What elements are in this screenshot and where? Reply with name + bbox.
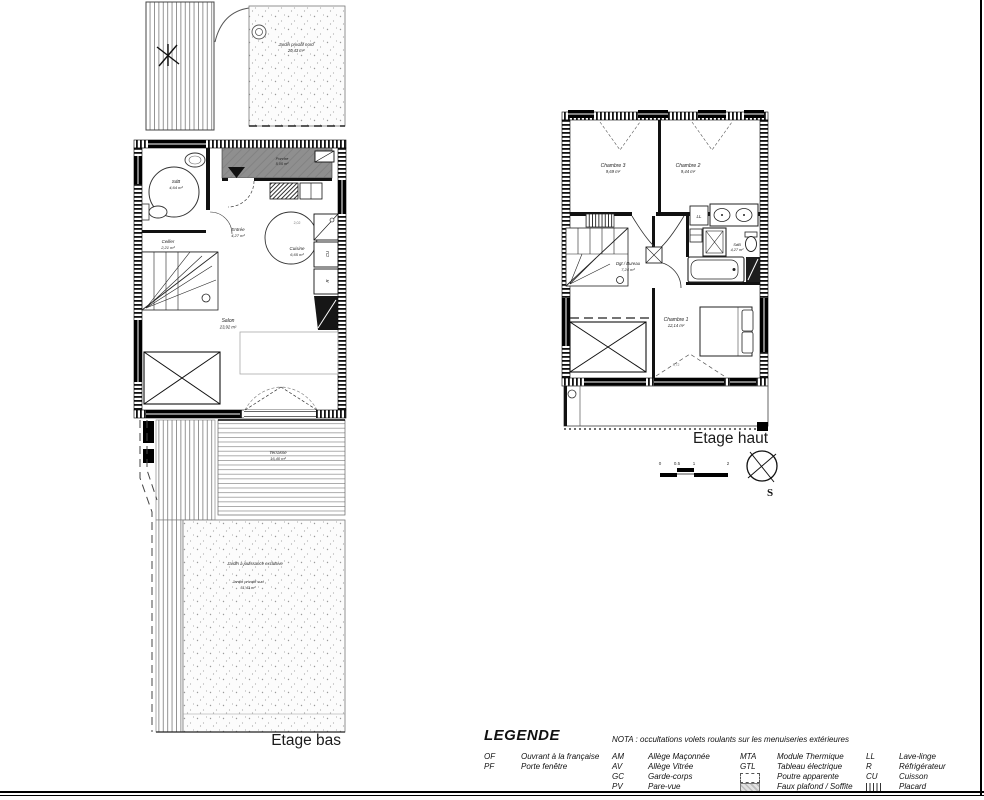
scale-tick-2: 2: [727, 461, 730, 466]
gtl-box: [690, 229, 702, 242]
chambre1-area: 12,14 m²: [668, 323, 685, 328]
compass-south-label: S: [767, 487, 773, 499]
jardin-nord-label: Jardin privatif nord: [277, 42, 314, 47]
sheet-border-bottom-inner: [0, 795, 984, 796]
scale-tick-0: 0: [659, 461, 662, 466]
washing-machine-label: LL: [696, 214, 702, 219]
cooktop-label: CU: [325, 250, 330, 257]
cuisine-label: Cuisine: [289, 246, 305, 251]
post: [143, 449, 154, 463]
jardin-nord-area: 20,43 m²: [287, 48, 305, 53]
sdb-haut-label: SdB: [733, 242, 741, 247]
sdb-bas-label: SdB: [172, 179, 181, 184]
legend-desc-gc: Garde-corps: [648, 772, 692, 781]
legend-abbr-ll: LL: [866, 752, 875, 761]
entree: Entrée 4,27 m²: [210, 212, 245, 238]
placard: [586, 214, 614, 227]
legend-abbr-pf: PF: [484, 762, 494, 771]
legend-abbr-of: OF: [484, 752, 495, 761]
legend-abbr-gc: GC: [612, 772, 624, 781]
bed: [700, 307, 753, 356]
basin-counter: [710, 204, 758, 226]
pillow: [742, 332, 753, 353]
wc-bowl: [149, 206, 167, 218]
jardin-exclusif-label: Jardin à jouissance exclusive: [226, 561, 283, 566]
legend-abbr-mta: MTA: [740, 752, 756, 761]
balcony: [564, 386, 768, 431]
entree-area: 4,27 m²: [231, 233, 245, 238]
legend-desc-av: Allège Vitrée: [648, 762, 693, 771]
entree-label: Entrée: [231, 227, 245, 232]
legend-abbr-r: R: [866, 762, 872, 771]
legend-desc-poutre: Poutre apparente: [777, 772, 839, 781]
chambre2-area: 9,44 m²: [681, 169, 696, 174]
legend-nota: NOTA : occultations volets roulants sur …: [612, 735, 849, 744]
double-height-void: [144, 352, 220, 404]
jardin-sud-label: Jardin privatif sud: [231, 579, 264, 584]
washbasin: [185, 153, 205, 167]
terrasse: Terrasse 16,40 m²: [218, 420, 345, 515]
legend-desc-faux-plafond: Faux plafond / Soffite: [777, 782, 853, 791]
sdb-haut-area: 4,27 m²: [731, 248, 745, 252]
fridge-label: R: [325, 279, 330, 282]
cellier: Cellier 2,21 m²: [142, 239, 218, 252]
legend-desc-mta: Module Thermique: [777, 752, 844, 761]
compass-rose: S: [747, 451, 777, 499]
legend-desc-pv: Pare-vue: [648, 782, 680, 791]
attic-hatch: [646, 247, 662, 263]
path-boundary: [140, 420, 152, 732]
legend-desc-cu: Cuisson: [899, 772, 928, 781]
etage-bas-title: Etage bas: [271, 732, 341, 749]
jardin-sud: Jardin à jouissance exclusive Jardin pri…: [156, 520, 345, 732]
scale-bar: 0 0.5 1 2: [659, 461, 730, 477]
scale-tick-1: 1: [693, 461, 696, 466]
jardin-sud-area: 51,43 m²: [240, 585, 256, 590]
faucet-icon: [330, 218, 334, 222]
cellier-area: 2,21 m²: [160, 245, 175, 250]
etage-haut-title: Etage haut: [693, 430, 769, 447]
french-door-salon: [245, 387, 317, 410]
legend-abbr-pv: PV: [612, 782, 623, 791]
legend-desc-gtl: Tableau électrique: [777, 762, 842, 771]
cuisine-area: 6,65 m²: [290, 252, 304, 257]
wc-tank: [142, 204, 149, 220]
pillow: [742, 310, 753, 331]
poutre-apparente-symbol: [740, 773, 760, 783]
wc-bowl: [746, 237, 757, 252]
staircase-haut: [566, 228, 628, 286]
dgt-area: 7,24 m²: [621, 267, 635, 272]
legend-desc-ll: Lave-linge: [899, 752, 936, 761]
salon-area: 23,92 m²: [219, 325, 237, 330]
terrasse-area: 16,40 m²: [270, 456, 286, 461]
shower-tray: [703, 228, 726, 256]
legend-abbr-gtl: GTL: [740, 762, 756, 771]
chambre3-area: 9,69 m²: [606, 169, 621, 174]
salon-label: Salon: [222, 318, 235, 324]
plan-etage-bas: Jardin privatif nord 20,43 m²: [134, 2, 346, 749]
dgt-label: Dgt / Bureau: [616, 261, 641, 266]
cuisine-dim: 2,02: [294, 221, 301, 225]
plan-etage-haut: Chambre 3 9,69 m² Chambre 2 9,44 m² LL S…: [562, 110, 777, 499]
legend-title: LEGENDE: [484, 727, 560, 744]
post: [143, 421, 154, 443]
porche: Porche 5,05 m²: [222, 148, 334, 178]
floor-plan-sheet: Jardin privatif nord 20,43 m²: [0, 0, 984, 800]
legend-desc-r: Réfrigérateur: [899, 762, 946, 771]
corner-cabinet: [314, 296, 338, 330]
sheet-border-right: [980, 0, 982, 796]
gate-arc: [215, 8, 249, 42]
terrasse-label: Terrasse: [269, 450, 287, 455]
staircase-bas: [142, 252, 218, 310]
chambre1-dim: 3,72: [673, 363, 680, 367]
chambre1: Chambre 1 12,14 m² 3,72: [664, 307, 753, 367]
legend-desc-am: Allège Maçonnée: [648, 752, 710, 761]
legend-abbr-am: AM: [612, 752, 624, 761]
well-symbol: [252, 25, 266, 39]
rug-outline: [240, 332, 338, 374]
cellier-label: Cellier: [162, 239, 175, 244]
void-over-salon: [570, 322, 646, 372]
bathtub: [688, 257, 744, 282]
legend-abbr-av: AV: [612, 762, 622, 771]
sdb-bas: SdB 4,64 m²: [142, 148, 210, 233]
floor-plan-drawing: Jardin privatif nord 20,43 m²: [0, 0, 984, 800]
sdb-bas-area: 4,64 m²: [169, 185, 183, 190]
legend-desc-of: Ouvrant à la française: [521, 752, 599, 761]
legend-desc-placard: Placard: [899, 782, 926, 791]
porche-area: 5,05 m²: [276, 162, 290, 166]
sdb-haut: LL SdB 4,27 m²: [688, 204, 760, 282]
salon: Salon 23,92 m²: [144, 318, 338, 404]
jardin-nord: Jardin privatif nord 20,43 m²: [249, 6, 345, 126]
porche-label: Porche: [276, 156, 289, 161]
scale-tick-05: 0.5: [674, 461, 681, 466]
legend-abbr-cu: CU: [866, 772, 878, 781]
legend-desc-pf: Porte fenêtre: [521, 762, 567, 771]
sheet-border-bottom: [0, 791, 984, 793]
north-deck: [146, 2, 214, 130]
cuisine: 2,02 Cuisine 6,65 m² CU R: [265, 183, 338, 330]
